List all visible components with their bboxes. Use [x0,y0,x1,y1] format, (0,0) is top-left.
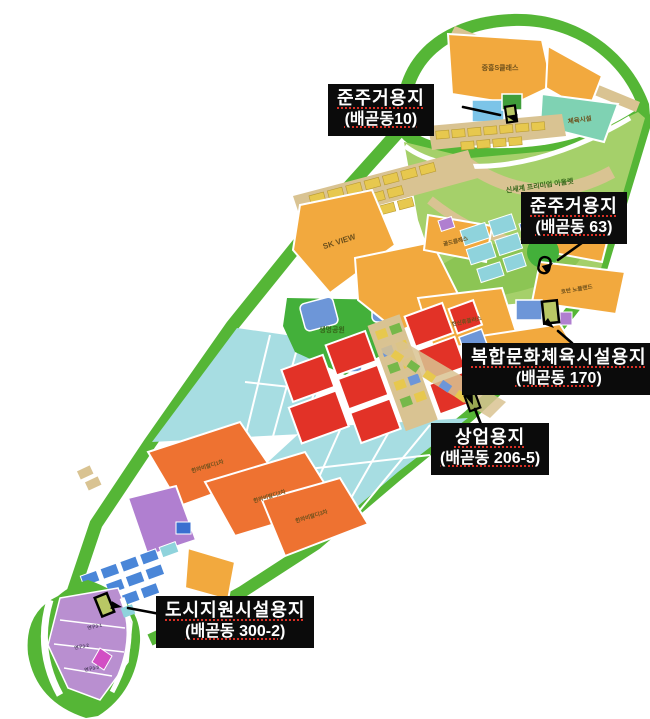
block [125,571,145,587]
block-blue [516,300,542,320]
callout-subtitle: (배곧동10) [345,111,418,128]
callout-subtitle: (배곧동 300-2) [185,623,285,640]
block [509,137,523,146]
block [484,126,498,135]
block-tan [85,476,101,490]
callout-title: 준주거용지 [337,88,425,108]
annotated-landuse-map: 중흥S클래스 체육시설 신세계 프리미엄 아울렛 SK VIEW 골드클래스 호… [0,0,650,719]
callout-city-support-baegot-300-2: 도시지원시설용지 (배곧동 300-2) [156,596,314,648]
callout-title: 복합문화체육시설용지 [471,347,647,367]
block [120,556,140,572]
parcel-orange-low [185,548,235,600]
callout-commercial-baegot-206-5: 상업용지 (배곧동 206-5) [431,423,549,475]
block [493,138,507,147]
label-jungheung: 중흥S클래스 [482,63,519,72]
block [461,141,475,150]
block [515,123,529,132]
target-parcel-baegot-170 [542,300,559,323]
block-tan [77,465,93,479]
block [145,564,165,580]
callout-title: 상업용지 [455,427,525,447]
label-park: 생명공원 [319,325,345,334]
callout-subtitle: (배곧동 170) [516,370,602,387]
callout-title: 도시지원시설용지 [165,600,305,620]
block [436,130,450,139]
block [139,549,159,565]
callout-subtitle: (배곧동 206-5) [440,450,540,467]
callout-culture-sports-baegot-170: 복합문화체육시설용지 (배곧동 170) [462,343,650,395]
block [499,124,513,133]
block-purple [560,312,572,325]
block [531,122,545,131]
callout-subtitle: (배곧동 63) [535,219,612,236]
block [100,563,120,579]
callout-semi-residential-baegot-63: 준주거용지 (배곧동 63) [521,192,627,244]
block [477,139,491,148]
block [452,129,466,138]
callout-title: 준주거용지 [530,196,618,216]
block-blue [176,522,191,534]
block [468,127,482,136]
callout-semi-residential-baegot-10: 준주거용지 (배곧동10) [328,84,434,136]
